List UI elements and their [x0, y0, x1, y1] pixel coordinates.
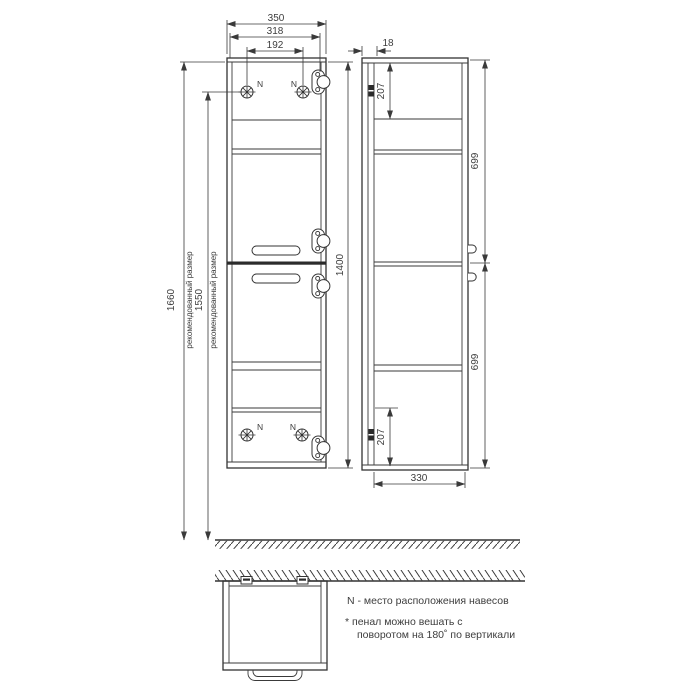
notes: N - место расположения навесов * пенал м… [345, 595, 515, 641]
front-view: N N N N [227, 58, 330, 468]
dim-width-318: 318 [267, 26, 284, 37]
note-mounting-2: поворотом на 180˚ по вертикали [357, 629, 515, 641]
top-view-handle [248, 670, 302, 681]
cabinet-top-view [223, 577, 327, 681]
hanger-n-label: N [257, 79, 263, 89]
drawing-canvas: N N N N 350 318 192 1400 1660 рекомендов… [0, 0, 700, 700]
wall-bracket-icon [297, 577, 308, 585]
hinge-icon [312, 274, 330, 298]
handle-profile-icon [468, 245, 476, 253]
top-view-outline [223, 581, 327, 670]
hinge-icon [312, 229, 330, 253]
door-divider [227, 262, 326, 265]
dim-overall-height-1660: 1660 [166, 288, 177, 311]
dim-upper-section-699: 699 [470, 152, 481, 169]
note-hanger-legend: N - место расположения навесов [347, 595, 509, 607]
dim-hanger-spacing-192: 192 [267, 40, 284, 51]
dim-width-350: 350 [268, 13, 285, 24]
dim-depth-330: 330 [411, 473, 428, 484]
hanger-screw-icon [239, 429, 256, 441]
front-shelf-lines [232, 120, 321, 412]
dim-lower-section-699: 699 [470, 353, 481, 370]
dim-bottom-offset-207: 207 [376, 428, 387, 445]
dim-top-offset-207: 207 [376, 82, 387, 99]
hanger-n-label: N [257, 422, 263, 432]
wall-bracket-icon [241, 577, 252, 585]
dim-back-panel-18: 18 [382, 38, 394, 49]
side-shelf-lines [374, 119, 462, 371]
hanger-screw-icon [239, 86, 256, 98]
hinge-icon [312, 436, 330, 460]
wall-bracket-icon [369, 85, 375, 97]
dim-height-1400: 1400 [335, 253, 346, 276]
floor-hatch [215, 541, 520, 549]
hanger-screw-icon [295, 86, 312, 98]
hanger-screw-icon [294, 429, 311, 441]
hanger-n-label: N [291, 79, 297, 89]
hanger-n-label: N [290, 422, 296, 432]
note-mounting-1: * пенал можно вешать с [345, 616, 463, 628]
floor-line [215, 540, 520, 549]
dim-mount-height-1550: 1550 [194, 288, 205, 311]
side-dimensions: 18 207 207 699 699 330 [348, 38, 490, 488]
hinge-icon [312, 70, 330, 94]
wall-bracket-icon [369, 429, 375, 441]
handle-profile-icon [468, 273, 476, 281]
lower-door-handle [252, 274, 300, 283]
upper-door-handle [252, 246, 300, 255]
cabinet-technical-drawing: N N N N 350 318 192 1400 1660 рекомендов… [0, 0, 700, 700]
dim-overall-height-note: рекомендованный размер [185, 251, 194, 349]
dim-mount-height-note: рекомендованный размер [209, 251, 218, 349]
wall-hatch [215, 570, 525, 580]
